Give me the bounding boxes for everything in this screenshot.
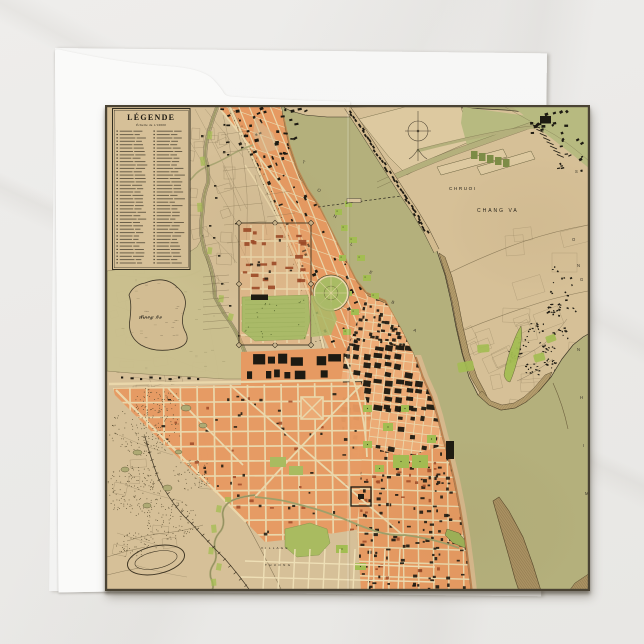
svg-text:T H U O N G: T H U O N G (265, 563, 291, 567)
svg-text:N: N (577, 347, 580, 352)
svg-text:I: I (583, 443, 584, 448)
svg-text:V I L L A G E: V I L L A G E (261, 546, 288, 550)
svg-text:H: H (580, 395, 583, 400)
svg-text:Échelle de 1/10000: Échelle de 1/10000 (136, 122, 166, 127)
svg-text:Bung So: Bung So (141, 314, 163, 319)
svg-text:LÉGENDE: LÉGENDE (127, 112, 175, 122)
